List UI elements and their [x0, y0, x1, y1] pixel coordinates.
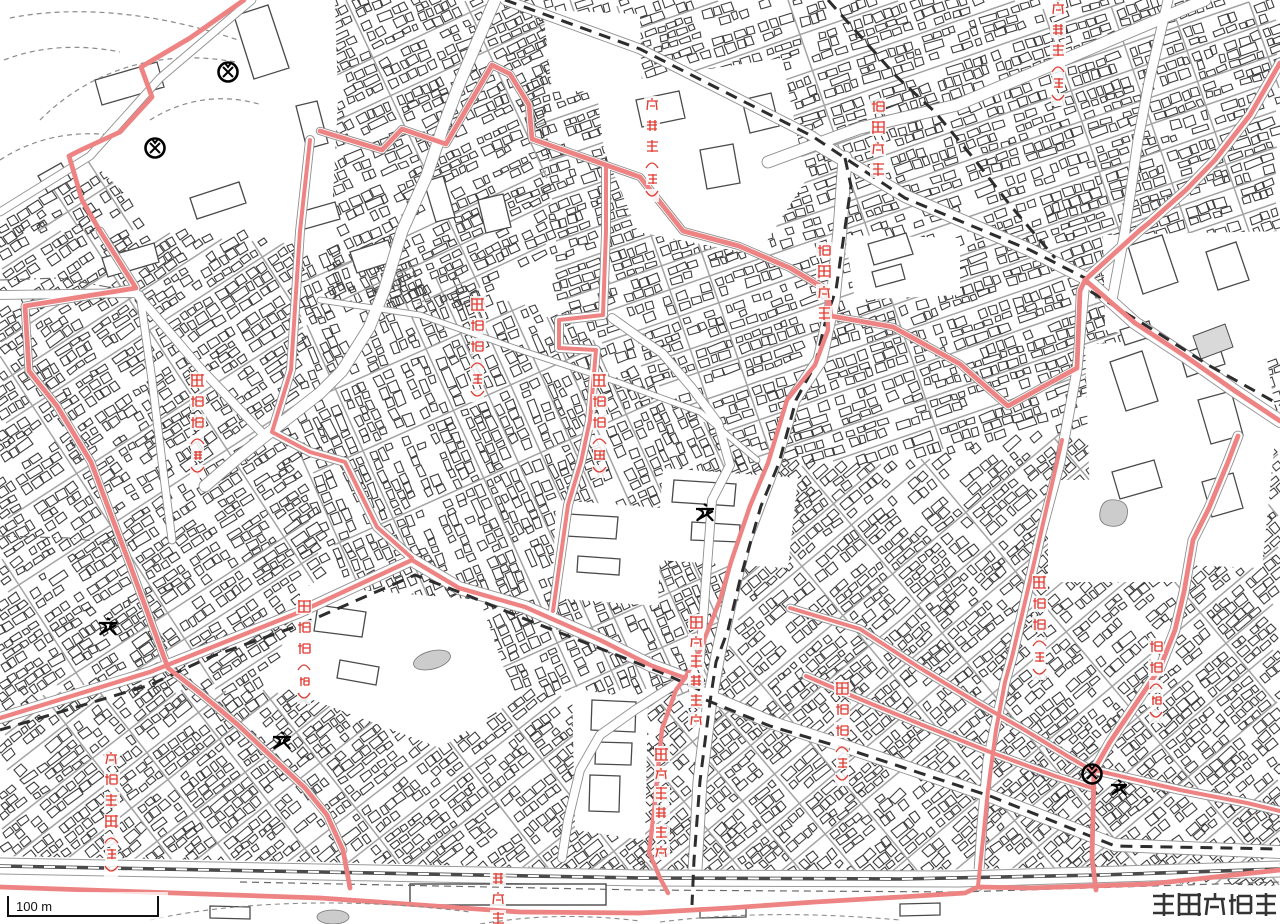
svg-text:100 m: 100 m [16, 899, 52, 914]
